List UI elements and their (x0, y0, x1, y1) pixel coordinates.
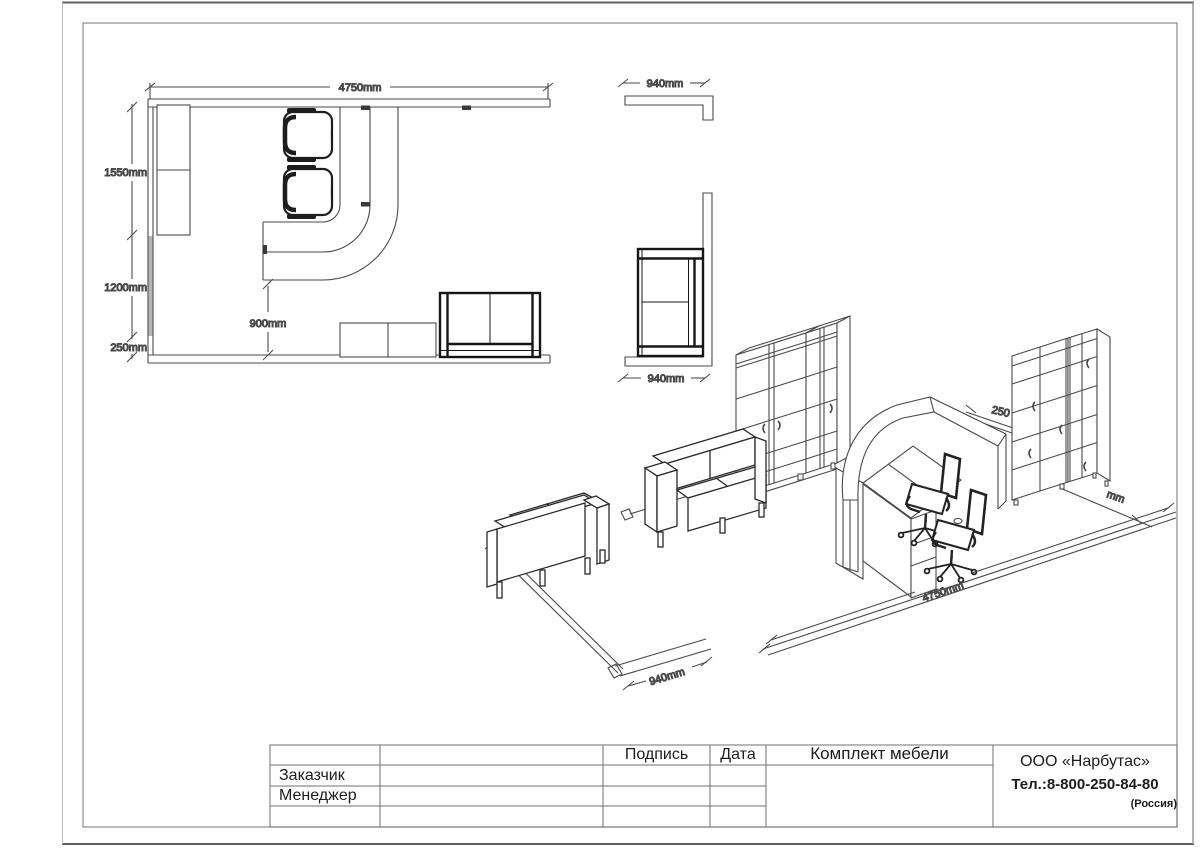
plan-dimension-900: 900mm (250, 279, 287, 360)
sofa-iso-front (487, 493, 609, 598)
corner-sofa-dim-label: 940mm (648, 373, 685, 385)
plan-dim-250-label: 250mm (110, 342, 147, 354)
iso-dim-depth-label: mm (1105, 488, 1126, 505)
drawing-sheet: 4750mm 1550mm 1200mm 250mm 900mm (0, 0, 1200, 850)
office-chair-plan (284, 165, 332, 219)
isometric-view: 250 mm (485, 316, 1176, 690)
iso-side-wall-line (608, 639, 711, 678)
company-phone: Тел.:8-800-250-84-80 (993, 774, 1177, 794)
corner-sofa-view: 940mm (618, 193, 712, 385)
floor-plan: 4750mm 1550mm 1200mm 250mm 900mm (104, 82, 553, 363)
plan-dim-900-label: 900mm (250, 318, 287, 330)
title-block-signature-header: Подпись (603, 745, 710, 765)
title-block-project-title: Комплект мебели (766, 744, 993, 764)
sofa-plan (440, 293, 540, 357)
company-country: (Россия) (993, 796, 1191, 812)
sofa-iso-back (645, 429, 766, 547)
office-chair-plan (284, 108, 332, 162)
plan-dimension-width: 4750mm (145, 82, 553, 99)
iso-dim-940-label: 940mm (648, 666, 687, 688)
coffee-table-plan (340, 323, 436, 357)
title-block-customer-label: Заказчик (270, 765, 389, 786)
title-block-date-header: Дата (710, 745, 766, 765)
title-block-manager-label: Менеджер (270, 786, 389, 806)
plan-dim-4750-label: 4750mm (339, 82, 382, 94)
iso-dimension-depth: mm (1060, 488, 1152, 527)
shelving-units-iso (1012, 329, 1110, 505)
sofa-section (638, 249, 703, 356)
company-name: ООО «Нарбутас» (993, 752, 1177, 772)
plan-dim-1550-label: 1550mm (104, 167, 147, 179)
iso-dim-250-label: 250 (990, 404, 1011, 420)
cad-linework: 4750mm 1550mm 1200mm 250mm 900mm (0, 0, 1200, 850)
wall-section-view: 940mm (618, 78, 713, 120)
plan-dim-1200-label: 1200mm (104, 282, 147, 294)
plan-dimension-left-chain: 1550mm 1200mm 250mm (104, 102, 147, 362)
cabinet-plan (157, 105, 190, 235)
wall-section-dim-label: 940mm (647, 78, 684, 90)
